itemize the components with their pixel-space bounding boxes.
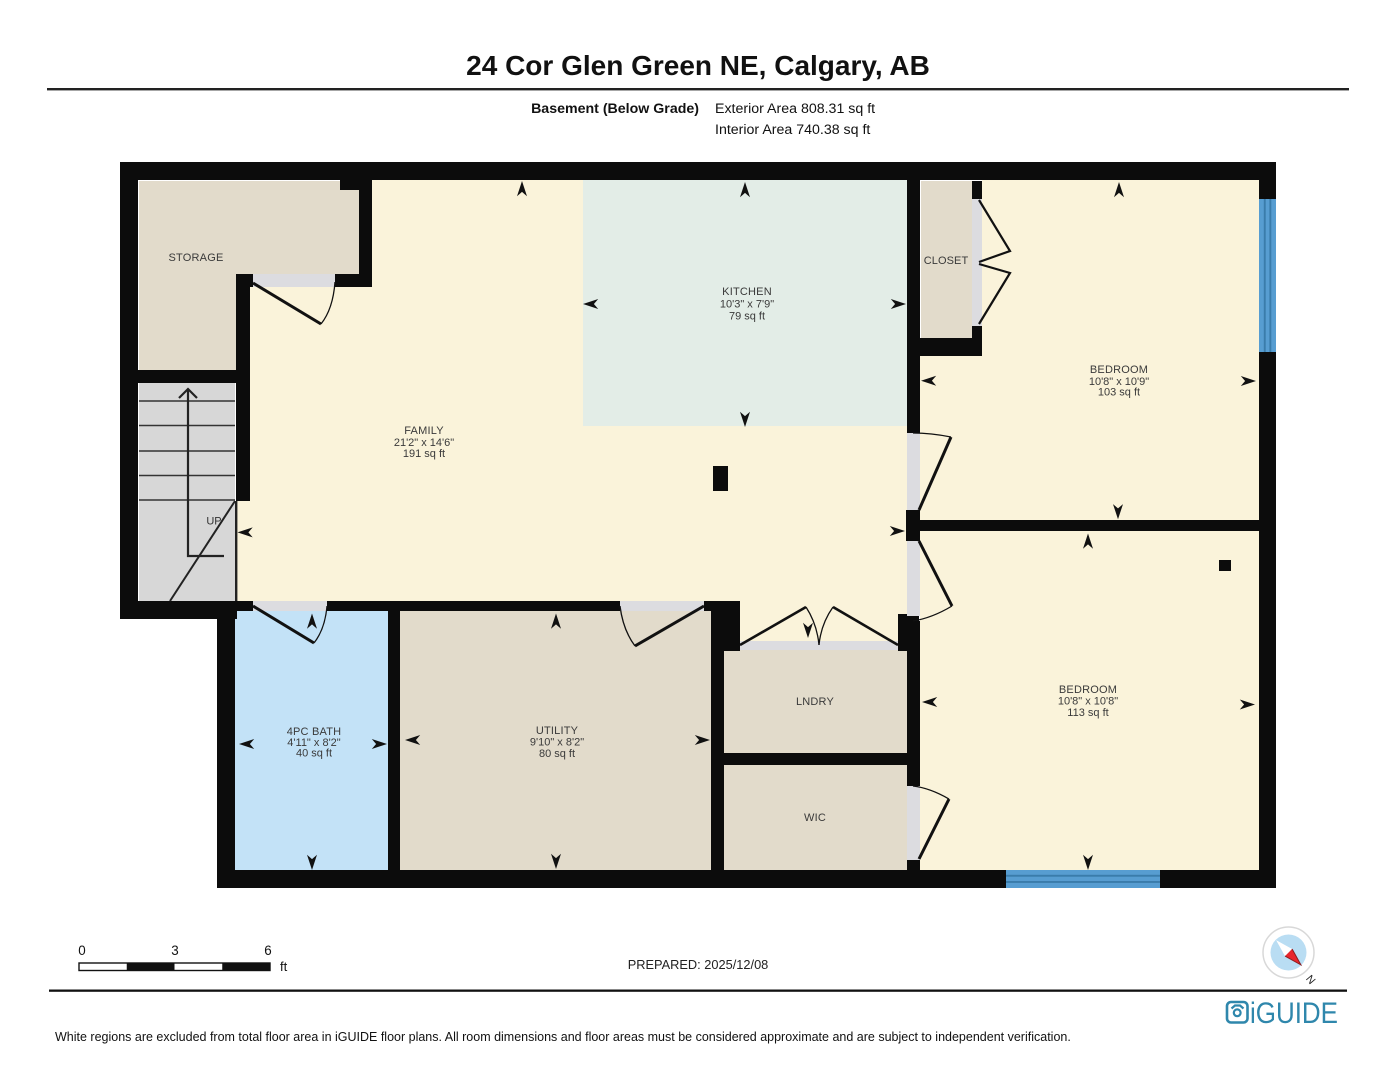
svg-text:White regions are excluded fro: White regions are excluded from total fl… [55, 1030, 1071, 1044]
svg-text:FAMILY: FAMILY [404, 425, 444, 437]
svg-text:79 sq ft: 79 sq ft [729, 311, 765, 323]
svg-text:UTILITY: UTILITY [536, 725, 579, 737]
svg-text:24 Cor Glen Green NE, Calgary,: 24 Cor Glen Green NE, Calgary, AB [466, 50, 930, 81]
svg-text:Exterior Area 808.31 sq ft: Exterior Area 808.31 sq ft [715, 101, 875, 117]
svg-text:UP: UP [206, 516, 221, 528]
svg-text:40 sq ft: 40 sq ft [296, 748, 332, 760]
svg-text:BEDROOM: BEDROOM [1090, 364, 1148, 376]
svg-text:N: N [1303, 973, 1317, 987]
svg-text:ft: ft [280, 959, 288, 974]
svg-text:LNDRY: LNDRY [796, 696, 835, 708]
svg-text:80 sq ft: 80 sq ft [539, 748, 575, 760]
svg-text:PREPARED: 2025/12/08: PREPARED: 2025/12/08 [628, 957, 769, 972]
svg-text:WIC: WIC [804, 812, 826, 824]
svg-text:Interior Area 740.38 sq ft: Interior Area 740.38 sq ft [715, 122, 870, 138]
svg-text:113 sq ft: 113 sq ft [1067, 707, 1108, 719]
svg-text:0: 0 [78, 943, 85, 958]
svg-text:9'10" x 8'2": 9'10" x 8'2" [530, 737, 584, 749]
svg-text:191 sq ft: 191 sq ft [403, 448, 445, 460]
svg-text:BEDROOM: BEDROOM [1059, 684, 1117, 696]
svg-text:STORAGE: STORAGE [169, 252, 224, 264]
svg-text:6: 6 [264, 943, 271, 958]
svg-text:CLOSET: CLOSET [924, 255, 969, 267]
svg-text:10'3" x 7'9": 10'3" x 7'9" [720, 299, 774, 311]
svg-text:103 sq ft: 103 sq ft [1098, 387, 1140, 399]
svg-text:iGUIDE: iGUIDE [1250, 997, 1338, 1030]
svg-text:10'8" x 10'8": 10'8" x 10'8" [1058, 696, 1118, 708]
svg-text:3: 3 [171, 943, 178, 958]
svg-text:KITCHEN: KITCHEN [722, 286, 772, 298]
svg-text:Basement (Below Grade): Basement (Below Grade) [531, 101, 699, 117]
